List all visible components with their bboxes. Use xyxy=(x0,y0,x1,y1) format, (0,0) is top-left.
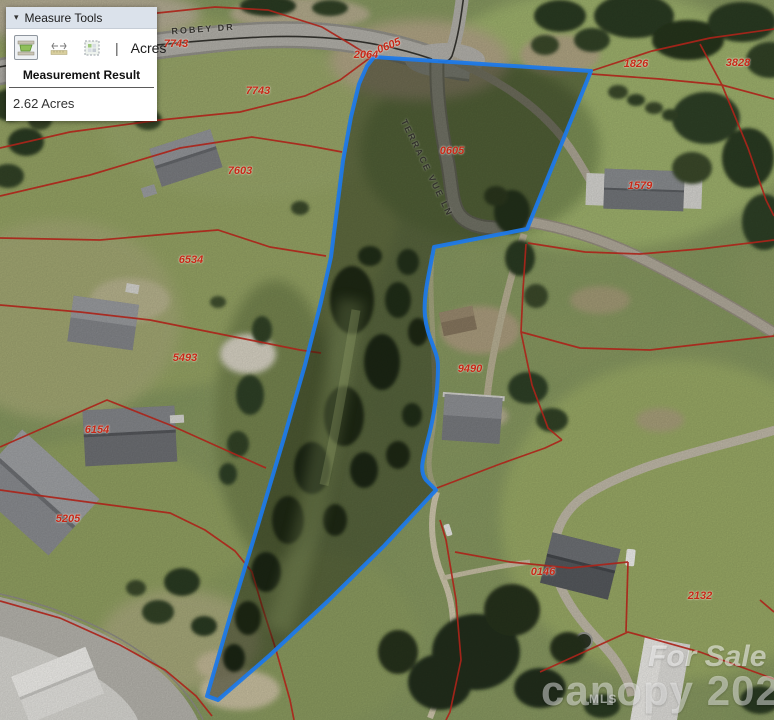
area-measure-button[interactable] xyxy=(14,35,38,60)
measure-tools-body: | Acres Measurement Result 2.62 Acres xyxy=(6,29,157,121)
collapse-arrow-icon: ▾ xyxy=(14,13,19,22)
measurement-result-value: 2.62 Acres xyxy=(6,88,157,121)
location-xy-icon xyxy=(83,39,101,57)
measurement-result-heading: Measurement Result xyxy=(6,68,157,82)
panel-title: Measure Tools xyxy=(25,11,103,25)
measure-tools-panel: ▾ Measure Tools xyxy=(6,7,157,121)
distance-measure-icon xyxy=(50,39,68,57)
location-measure-button[interactable] xyxy=(80,35,104,60)
gis-map-stage: 7743774376036534549361545205206406050605… xyxy=(0,0,774,720)
measure-toolbar: | Acres xyxy=(6,29,157,63)
area-measure-icon xyxy=(17,39,35,57)
toolbar-separator: | xyxy=(115,40,119,56)
measure-tools-header[interactable]: ▾ Measure Tools xyxy=(6,7,157,29)
distance-measure-button[interactable] xyxy=(47,35,71,60)
unit-label: Acres xyxy=(131,40,167,56)
